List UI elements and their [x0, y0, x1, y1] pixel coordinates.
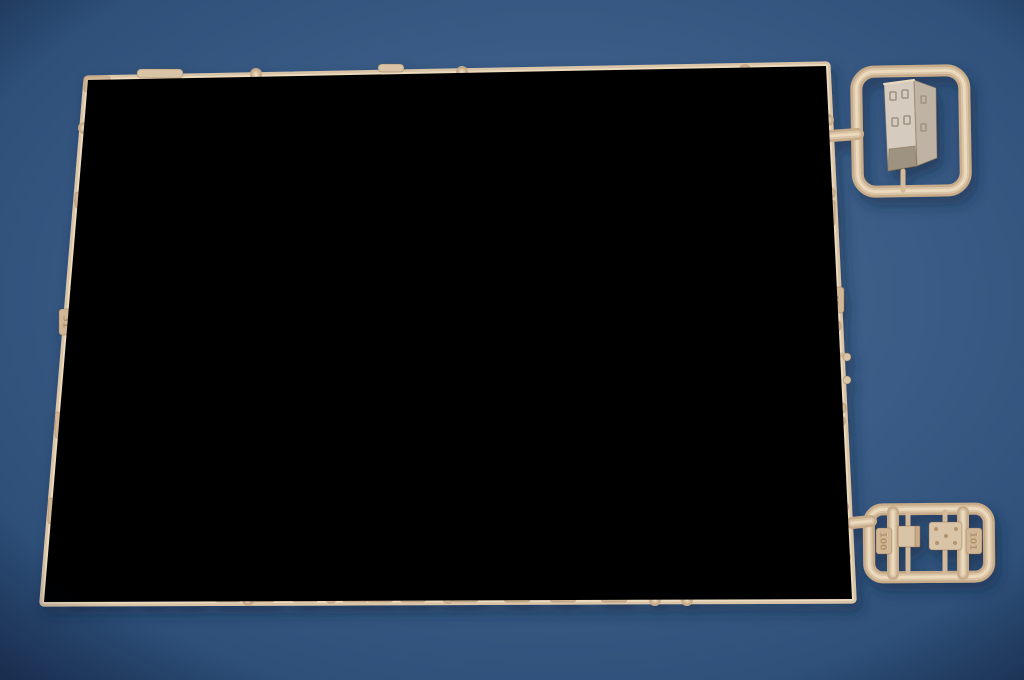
sprue-photo: 1122334455667788101011111212131314141515… — [0, 0, 1024, 680]
photo-canvas: Photograph of a tan injection-molded pla… — [0, 0, 1024, 680]
vignette — [0, 0, 1024, 680]
